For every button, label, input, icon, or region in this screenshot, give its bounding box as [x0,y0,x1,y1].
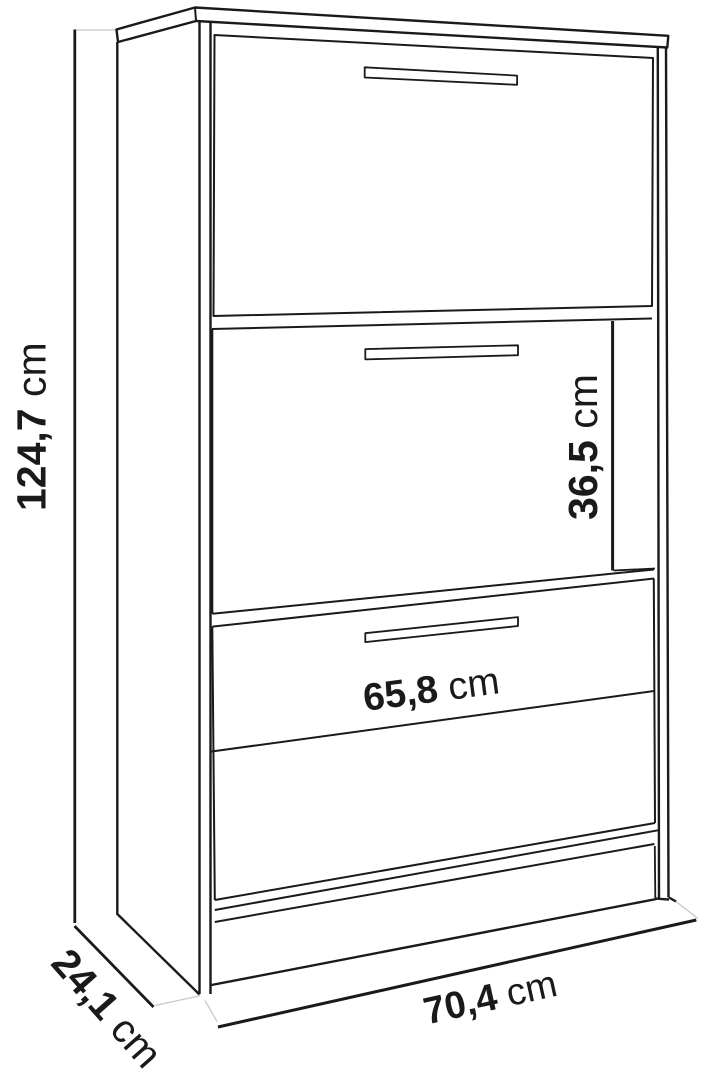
svg-text:36,5 cm: 36,5 cm [560,374,606,520]
svg-text:24,1 cm: 24,1 cm [43,941,170,1077]
svg-text:65,8 cm: 65,8 cm [361,659,502,720]
svg-text:124,7 cm: 124,7 cm [9,342,55,511]
svg-text:70,4 cm: 70,4 cm [420,963,561,1033]
